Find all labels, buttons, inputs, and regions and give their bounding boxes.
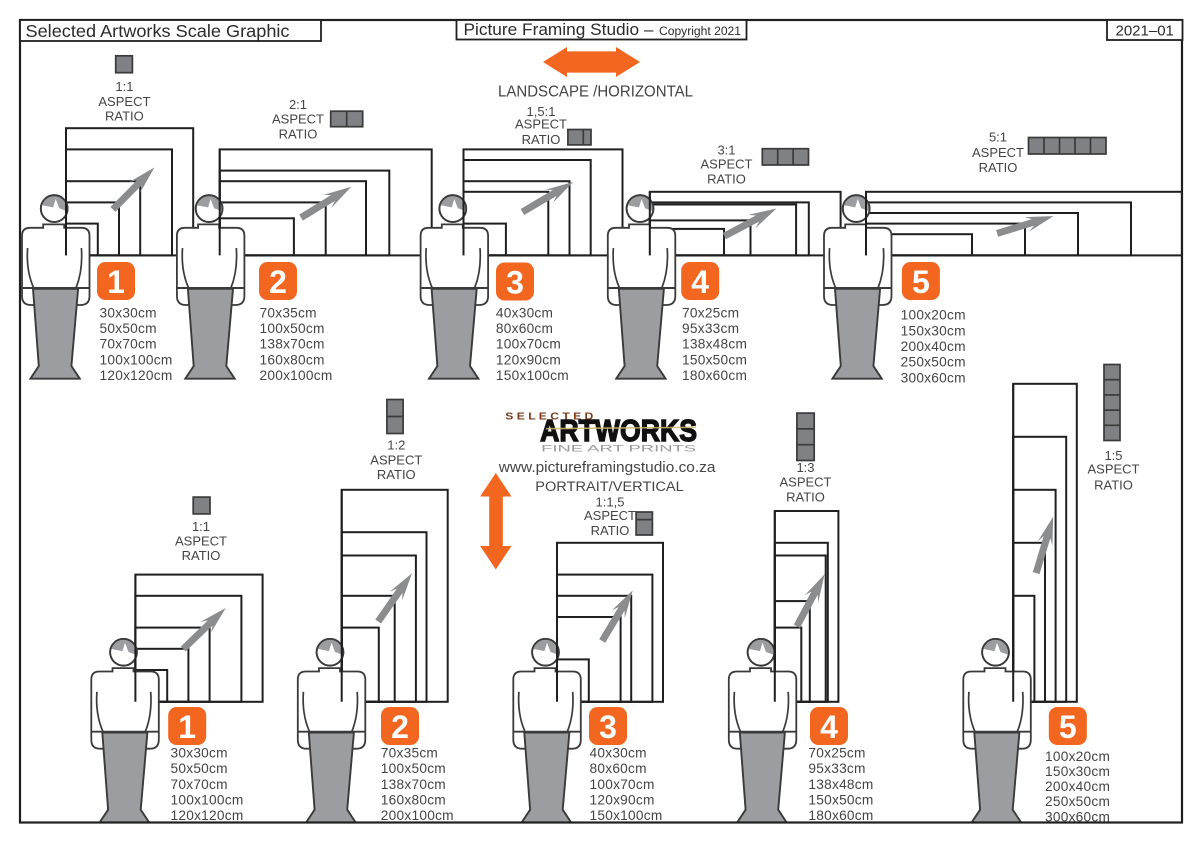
svg-text:RATIO: RATIO (279, 126, 318, 141)
svg-text:ASPECT: ASPECT (370, 453, 422, 468)
svg-text:200x100cm: 200x100cm (381, 808, 454, 823)
svg-text:70x35cm: 70x35cm (260, 305, 317, 320)
svg-text:120x120cm: 120x120cm (171, 808, 244, 823)
svg-text:150x100cm: 150x100cm (496, 368, 569, 383)
svg-text:100x20cm: 100x20cm (901, 308, 966, 323)
svg-text:250x50cm: 250x50cm (901, 355, 966, 370)
svg-text:ASPECT: ASPECT (515, 116, 567, 131)
svg-text:138x48cm: 138x48cm (682, 337, 747, 352)
svg-text:120x90cm: 120x90cm (496, 352, 561, 367)
svg-text:ASPECT: ASPECT (700, 157, 752, 172)
svg-text:138x48cm: 138x48cm (808, 777, 873, 792)
svg-text:80x60cm: 80x60cm (590, 761, 647, 776)
svg-text:250x50cm: 250x50cm (1045, 794, 1110, 809)
svg-text:RATIO: RATIO (1094, 477, 1133, 492)
svg-text:150x100cm: 150x100cm (590, 808, 663, 823)
svg-text:PORTRAIT/VERTICAL: PORTRAIT/VERTICAL (535, 479, 684, 494)
svg-text:1:1: 1:1 (192, 519, 210, 534)
svg-text:ASPECT: ASPECT (779, 475, 831, 490)
svg-text:160x80cm: 160x80cm (260, 352, 325, 367)
svg-text:ASPECT: ASPECT (272, 111, 324, 126)
svg-text:5: 5 (912, 264, 930, 300)
svg-text:30x30cm: 30x30cm (171, 745, 228, 760)
svg-text:RATIO: RATIO (591, 523, 630, 538)
svg-text:138x70cm: 138x70cm (381, 777, 446, 792)
svg-text:40x30cm: 40x30cm (496, 305, 553, 320)
svg-text:2: 2 (391, 709, 409, 745)
svg-text:80x60cm: 80x60cm (496, 321, 553, 336)
svg-text:1:2: 1:2 (387, 438, 405, 453)
svg-text:70x70cm: 70x70cm (100, 337, 157, 352)
svg-text:100x100cm: 100x100cm (100, 352, 173, 367)
svg-text:120x90cm: 120x90cm (590, 793, 655, 808)
svg-text:3: 3 (599, 709, 617, 745)
svg-text:1:1: 1:1 (115, 79, 133, 94)
svg-text:180x60cm: 180x60cm (682, 368, 747, 383)
svg-text:100x100cm: 100x100cm (171, 793, 244, 808)
svg-text:5:1: 5:1 (989, 129, 1007, 144)
svg-text:200x40cm: 200x40cm (1045, 779, 1110, 794)
svg-text:70x25cm: 70x25cm (808, 745, 865, 760)
svg-text:50x50cm: 50x50cm (171, 761, 228, 776)
svg-text:1:3: 1:3 (796, 460, 814, 475)
svg-text:95x33cm: 95x33cm (682, 321, 739, 336)
svg-text:160x80cm: 160x80cm (381, 793, 446, 808)
svg-text:5: 5 (1059, 709, 1077, 745)
svg-text:2021–01: 2021–01 (1115, 23, 1173, 40)
svg-text:100x70cm: 100x70cm (496, 337, 561, 352)
svg-text:150x30cm: 150x30cm (901, 323, 966, 338)
svg-text:200x100cm: 200x100cm (260, 368, 333, 383)
svg-text:ASPECT: ASPECT (972, 145, 1024, 160)
svg-text:RATIO: RATIO (979, 160, 1018, 175)
svg-text:FINE ART PRINTS: FINE ART PRINTS (541, 443, 696, 454)
svg-text:200x40cm: 200x40cm (901, 339, 966, 354)
svg-text:180x60cm: 180x60cm (808, 808, 873, 823)
svg-text:1: 1 (178, 709, 196, 745)
svg-text:40x30cm: 40x30cm (590, 745, 647, 760)
svg-text:50x50cm: 50x50cm (100, 321, 157, 336)
svg-text:1: 1 (107, 264, 125, 300)
svg-text:70x25cm: 70x25cm (682, 305, 739, 320)
svg-text:70x70cm: 70x70cm (171, 777, 228, 792)
svg-text:300x60cm: 300x60cm (901, 370, 966, 385)
svg-text:95x33cm: 95x33cm (808, 761, 865, 776)
svg-text:100x50cm: 100x50cm (381, 761, 446, 776)
svg-text:Selected Artworks Scale Graphi: Selected Artworks Scale Graphic (26, 21, 290, 41)
svg-text:70x35cm: 70x35cm (381, 745, 438, 760)
svg-text:4: 4 (820, 709, 838, 745)
svg-text:100x70cm: 100x70cm (590, 777, 655, 792)
svg-text:ASPECT: ASPECT (175, 534, 227, 549)
svg-text:RATIO: RATIO (105, 109, 144, 124)
svg-text:Copyright 2021: Copyright 2021 (659, 26, 741, 38)
svg-text:RATIO: RATIO (182, 548, 221, 563)
svg-text:2: 2 (269, 264, 287, 300)
svg-text:3: 3 (506, 265, 524, 301)
svg-text:120x120cm: 120x120cm (100, 368, 173, 383)
svg-text:ASPECT: ASPECT (584, 508, 636, 523)
svg-text:4: 4 (691, 264, 709, 300)
svg-text:3:1: 3:1 (717, 143, 735, 158)
svg-text:ASPECT: ASPECT (98, 94, 150, 109)
svg-text:138x70cm: 138x70cm (260, 337, 325, 352)
svg-text:RATIO: RATIO (522, 132, 561, 147)
svg-text:RATIO: RATIO (707, 171, 746, 186)
svg-text:30x30cm: 30x30cm (100, 305, 157, 320)
svg-text:RATIO: RATIO (786, 490, 825, 505)
svg-text:www.pictureframingstudio.co.za: www.pictureframingstudio.co.za (498, 460, 717, 476)
svg-text:100x50cm: 100x50cm (260, 321, 325, 336)
svg-text:100x20cm: 100x20cm (1045, 749, 1110, 764)
svg-text:150x50cm: 150x50cm (808, 793, 873, 808)
svg-text:RATIO: RATIO (377, 467, 416, 482)
svg-text:2:1: 2:1 (289, 97, 307, 112)
svg-text:ASPECT: ASPECT (1087, 462, 1139, 477)
svg-text:150x30cm: 150x30cm (1045, 764, 1110, 779)
svg-text:Picture Framing Studio –: Picture Framing Studio – (464, 21, 655, 39)
svg-text:150x50cm: 150x50cm (682, 352, 747, 367)
svg-text:LANDSCAPE /HORIZONTAL: LANDSCAPE /HORIZONTAL (498, 84, 693, 101)
